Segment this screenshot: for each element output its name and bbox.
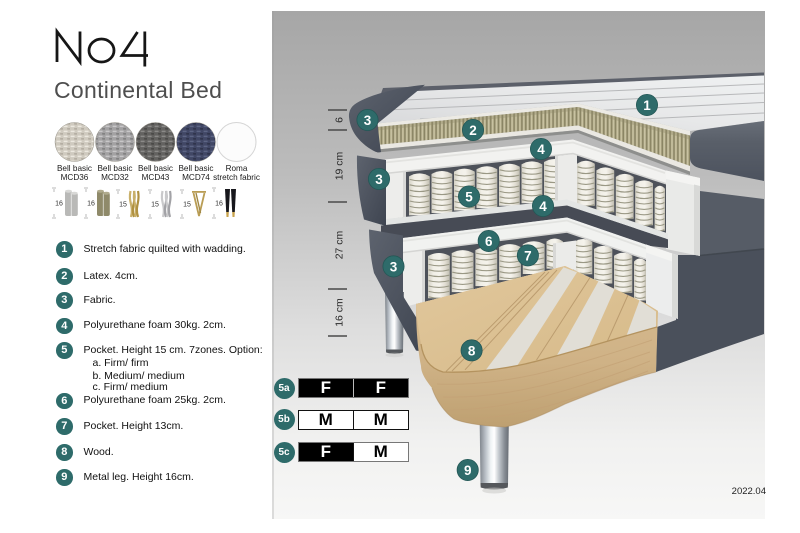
svg-text:19 cm: 19 cm: [334, 151, 346, 180]
svg-text:4: 4: [539, 199, 547, 214]
svg-text:Bell basic: Bell basic: [97, 164, 132, 173]
svg-text:Roma: Roma: [226, 164, 248, 173]
svg-text:MCD74: MCD74: [182, 173, 210, 182]
svg-text:16: 16: [215, 201, 223, 208]
svg-text:MCD43: MCD43: [142, 173, 170, 182]
svg-text:8: 8: [468, 343, 476, 358]
svg-text:Bell basic: Bell basic: [57, 164, 92, 173]
svg-text:6: 6: [334, 117, 346, 123]
svg-text:2: 2: [469, 123, 477, 138]
svg-text:MCD32: MCD32: [101, 173, 129, 182]
svg-text:Bell basic: Bell basic: [178, 164, 213, 173]
svg-text:9: 9: [464, 463, 472, 478]
svg-text:3: 3: [375, 172, 383, 187]
svg-text:15: 15: [151, 202, 159, 209]
svg-text:MCD36: MCD36: [61, 173, 89, 182]
svg-text:27 cm: 27 cm: [334, 230, 346, 259]
svg-text:15: 15: [119, 202, 127, 209]
svg-text:15: 15: [183, 202, 191, 209]
svg-text:16: 16: [87, 201, 95, 208]
svg-text:16: 16: [55, 201, 63, 208]
svg-text:7: 7: [524, 248, 532, 263]
svg-text:16 cm: 16 cm: [334, 298, 346, 327]
svg-text:5: 5: [465, 189, 473, 204]
svg-text:6: 6: [485, 234, 493, 249]
svg-text:1: 1: [643, 98, 651, 113]
svg-text:4: 4: [537, 142, 545, 157]
svg-text:3: 3: [390, 259, 398, 274]
svg-text:stretch fabric: stretch fabric: [213, 173, 260, 182]
svg-text:3: 3: [364, 113, 372, 128]
svg-text:Bell basic: Bell basic: [138, 164, 173, 173]
